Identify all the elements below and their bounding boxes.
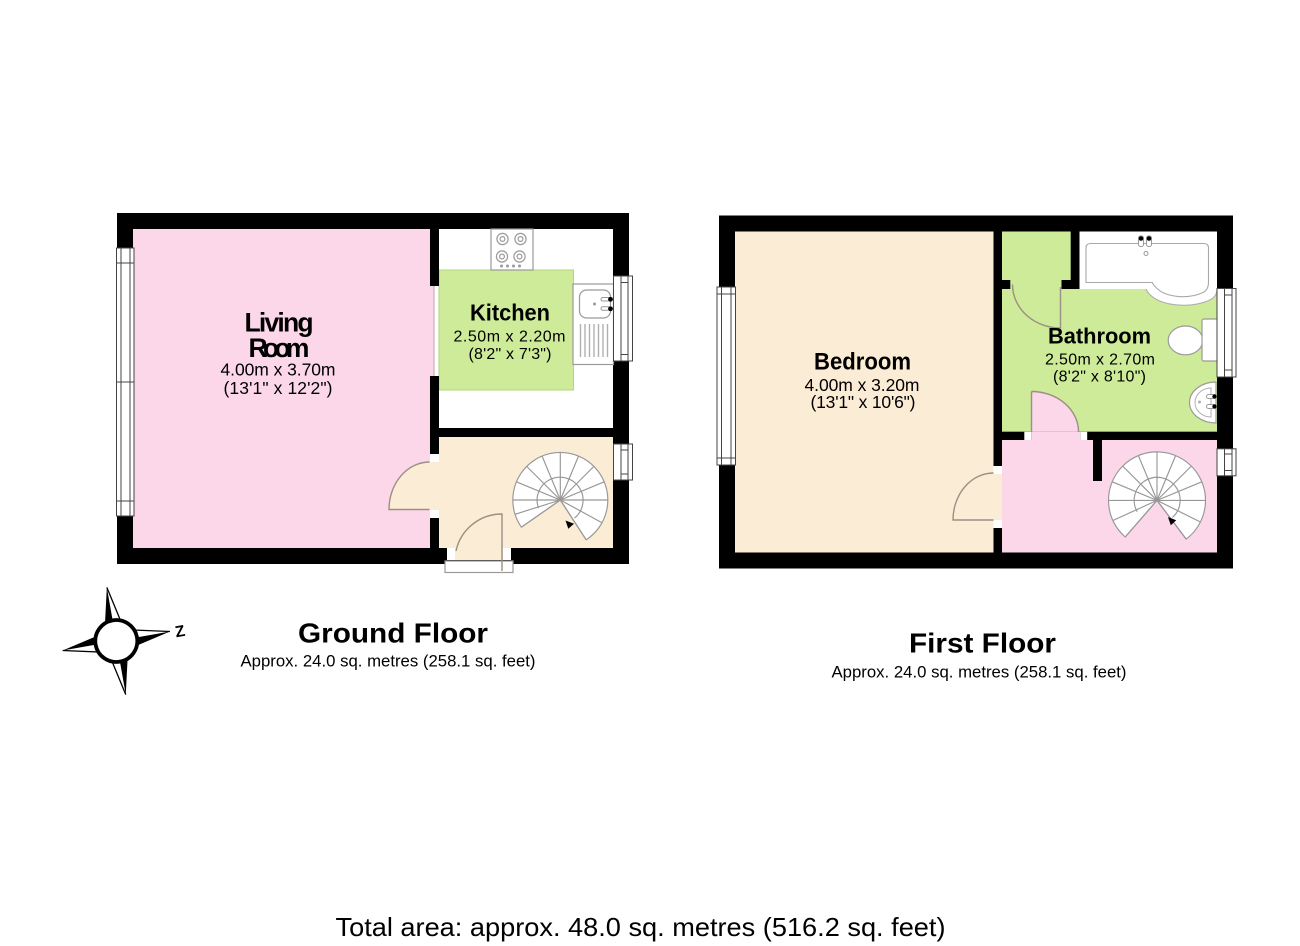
svg-text:Approx. 24.0 sq. metres (258.1: Approx. 24.0 sq. metres (258.1 sq. feet) (832, 663, 1127, 682)
svg-text:Approx. 24.0 sq. metres (258.1: Approx. 24.0 sq. metres (258.1 sq. feet) (241, 652, 536, 671)
svg-text:Bathroom: Bathroom (1048, 324, 1151, 349)
svg-text:(8'2" x 8'10"): (8'2" x 8'10") (1053, 369, 1146, 386)
svg-text:Bedroom: Bedroom (814, 349, 911, 376)
svg-text:First Floor: First Floor (909, 628, 1056, 659)
svg-text:2.50m x 2.20m: 2.50m x 2.20m (454, 329, 566, 346)
svg-text:Total area: approx. 48.0 sq. m: Total area: approx. 48.0 sq. metres (516… (336, 912, 946, 942)
svg-text:Room: Room (249, 333, 310, 363)
svg-text:(13'1" x 10'6"): (13'1" x 10'6") (811, 392, 916, 412)
svg-text:(8'2" x 7'3"): (8'2" x 7'3") (469, 346, 552, 363)
svg-text:4.00m x 3.70m: 4.00m x 3.70m (221, 360, 336, 380)
svg-text:Kitchen: Kitchen (470, 300, 550, 326)
svg-text:Ground Floor: Ground Floor (298, 618, 488, 649)
svg-text:2.50m x 2.70m: 2.50m x 2.70m (1045, 352, 1155, 369)
svg-text:(13'1" x 12'2"): (13'1" x 12'2") (224, 378, 333, 398)
